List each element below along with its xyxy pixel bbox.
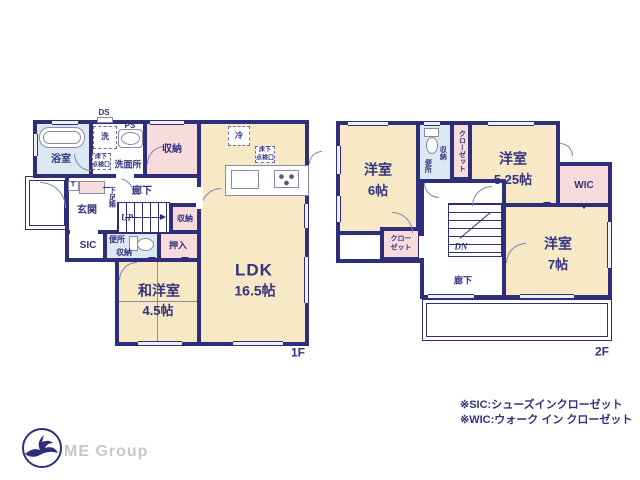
label-closet-small: クローゼット bbox=[391, 235, 412, 253]
bathtub-inner bbox=[43, 131, 81, 144]
label-toilet-storage: 収納 bbox=[116, 248, 132, 258]
label-wic: WIC bbox=[574, 180, 593, 193]
sliding-door-mark bbox=[181, 257, 189, 262]
label-underfloor-line2: 点検口 bbox=[256, 155, 274, 163]
door-arc-outside bbox=[560, 143, 573, 156]
window bbox=[520, 294, 574, 299]
label-closet-small-line1: クロー bbox=[391, 235, 412, 244]
label-sic: SIC bbox=[80, 240, 97, 253]
room-ldk bbox=[197, 120, 309, 346]
label-hallway-1f: 廊下 bbox=[132, 186, 152, 199]
label-bathroom: 浴室 bbox=[51, 154, 71, 167]
label-washroom: 洗面所 bbox=[114, 159, 141, 170]
tatami-line-h bbox=[119, 301, 197, 302]
opening-hallways bbox=[419, 236, 426, 258]
label-western525-size: 5.25帖 bbox=[494, 172, 532, 188]
sliding-door-mark bbox=[148, 257, 156, 262]
label-ps: PS bbox=[125, 121, 136, 131]
opening-hall-ldk bbox=[196, 187, 203, 209]
balcony-inner-line bbox=[426, 303, 608, 337]
label-storage-top: 収納 bbox=[162, 144, 182, 157]
window bbox=[336, 196, 341, 222]
bathtub-icon bbox=[39, 127, 85, 148]
label-hallway-2f: 廊下 bbox=[454, 275, 472, 286]
window bbox=[304, 257, 309, 303]
label-shoe-box: 下足箱 bbox=[107, 187, 116, 208]
window bbox=[33, 134, 38, 156]
label-storage-2f: 収納 bbox=[438, 146, 447, 160]
opening-entrance-sic bbox=[70, 229, 98, 236]
label-stairs-up: UP bbox=[121, 212, 133, 223]
door-arc-backdoor bbox=[309, 151, 322, 164]
opening-washroom-hall bbox=[116, 173, 134, 179]
window bbox=[424, 121, 440, 126]
label-toilet-2f: 便所 bbox=[423, 159, 432, 173]
window bbox=[348, 121, 388, 126]
company-logo bbox=[20, 426, 64, 470]
toilet-bowl-1f bbox=[137, 238, 154, 251]
label-underfloor-line1: 床下 bbox=[256, 148, 274, 156]
label-floor-1f: 1F bbox=[291, 346, 305, 361]
label-underfloor-ldk: 床下点検口 bbox=[256, 148, 274, 163]
toilet-tank-2f bbox=[424, 128, 439, 137]
label-fridge: 冷 bbox=[235, 131, 243, 141]
kitchen-sink-icon bbox=[231, 170, 259, 189]
label-japanese-room-size: 4.5帖 bbox=[142, 303, 173, 319]
label-washer: 洗 bbox=[101, 132, 109, 142]
label-underfloor-washroom: 床下点検口 bbox=[92, 155, 110, 170]
note-wic: ※WIC:ウォーク イン クローゼット bbox=[460, 411, 632, 427]
label-western7: 洋室 bbox=[544, 235, 572, 253]
window bbox=[488, 121, 534, 126]
company-name: ME Group bbox=[64, 443, 148, 461]
window bbox=[428, 294, 474, 299]
label-ldk: LDK bbox=[235, 259, 273, 280]
label-t-box: T bbox=[71, 182, 75, 191]
label-stairs-down: DN bbox=[455, 241, 468, 252]
label-western7-size: 7帖 bbox=[548, 257, 568, 273]
stove-icon bbox=[274, 170, 299, 188]
window bbox=[233, 341, 283, 346]
label-underfloor-line1: 床下 bbox=[92, 155, 110, 163]
label-underfloor-line2: 点検口 bbox=[92, 162, 110, 170]
label-toilet-1f: 便所 bbox=[109, 235, 125, 245]
label-ldk-size: 16.5帖 bbox=[234, 282, 275, 300]
window bbox=[336, 146, 341, 174]
balcony bbox=[422, 299, 612, 341]
sliding-door-mark bbox=[543, 202, 551, 207]
label-floor-2f: 2F bbox=[595, 345, 609, 360]
window bbox=[304, 204, 309, 228]
shoe-box-icon bbox=[79, 181, 105, 194]
window bbox=[138, 341, 182, 346]
label-closet-tall: クローゼット bbox=[457, 130, 466, 172]
window bbox=[52, 120, 78, 125]
window bbox=[607, 222, 612, 268]
note-sic: ※SIC:シューズインクローゼット bbox=[460, 396, 623, 412]
sliding-door-mark bbox=[580, 204, 588, 209]
label-western6: 洋室 bbox=[364, 161, 392, 179]
sink-icon bbox=[118, 129, 143, 148]
label-western525: 洋室 bbox=[499, 150, 527, 168]
label-closet-small-line2: ゼット bbox=[391, 244, 412, 253]
swan-logo-icon bbox=[20, 426, 64, 470]
label-western6-size: 6帖 bbox=[368, 183, 388, 199]
label-storage-mid: 収納 bbox=[177, 214, 193, 224]
floorplan-image: DS PS 洗 浴室 床下点検口 洗面所 収納 冷 床下点検口 T 下足箱 玄関… bbox=[0, 0, 640, 480]
label-oshiire: 押入 bbox=[169, 240, 187, 251]
sink-bowl bbox=[121, 132, 140, 145]
label-ds: DS bbox=[98, 108, 109, 118]
label-entrance: 玄関 bbox=[77, 205, 97, 218]
window bbox=[150, 120, 184, 125]
toilet-bowl-2f bbox=[426, 137, 438, 154]
label-japanese-room: 和洋室 bbox=[138, 282, 180, 300]
stairs-arrow-head bbox=[160, 214, 166, 220]
